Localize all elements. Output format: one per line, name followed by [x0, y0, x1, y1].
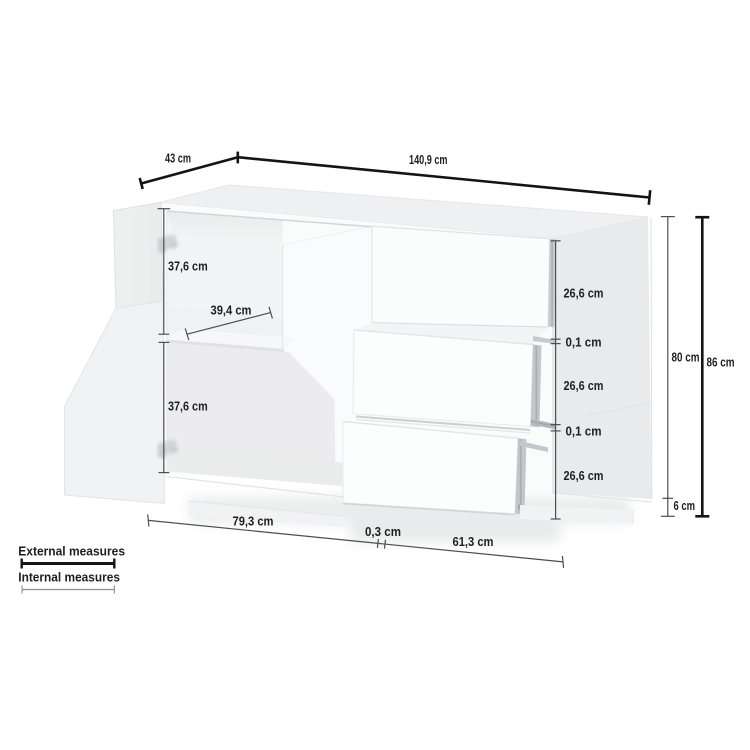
svg-text:39,4 cm: 39,4 cm — [211, 304, 252, 318]
svg-text:0,1 cm: 0,1 cm — [566, 336, 602, 350]
svg-text:37,6 cm: 37,6 cm — [168, 399, 208, 413]
svg-text:26,6 cm: 26,6 cm — [564, 287, 604, 301]
svg-text:86 cm: 86 cm — [707, 356, 735, 370]
svg-text:79,3 cm: 79,3 cm — [233, 514, 274, 528]
svg-text:0,1 cm: 0,1 cm — [566, 425, 602, 439]
svg-text:80 cm: 80 cm — [672, 351, 700, 365]
svg-text:26,6 cm: 26,6 cm — [564, 379, 604, 393]
svg-text:0,3 cm: 0,3 cm — [365, 525, 401, 539]
svg-text:43 cm: 43 cm — [165, 152, 191, 166]
svg-text:61,3 cm: 61,3 cm — [453, 535, 494, 549]
svg-text:37,6 cm: 37,6 cm — [168, 260, 208, 274]
svg-text:140,9 cm: 140,9 cm — [409, 153, 448, 167]
svg-text:Internal measures: Internal measures — [18, 570, 120, 585]
svg-text:6 cm: 6 cm — [674, 499, 696, 513]
svg-text:26,6 cm: 26,6 cm — [564, 469, 604, 483]
svg-text:External measures: External measures — [18, 544, 125, 559]
